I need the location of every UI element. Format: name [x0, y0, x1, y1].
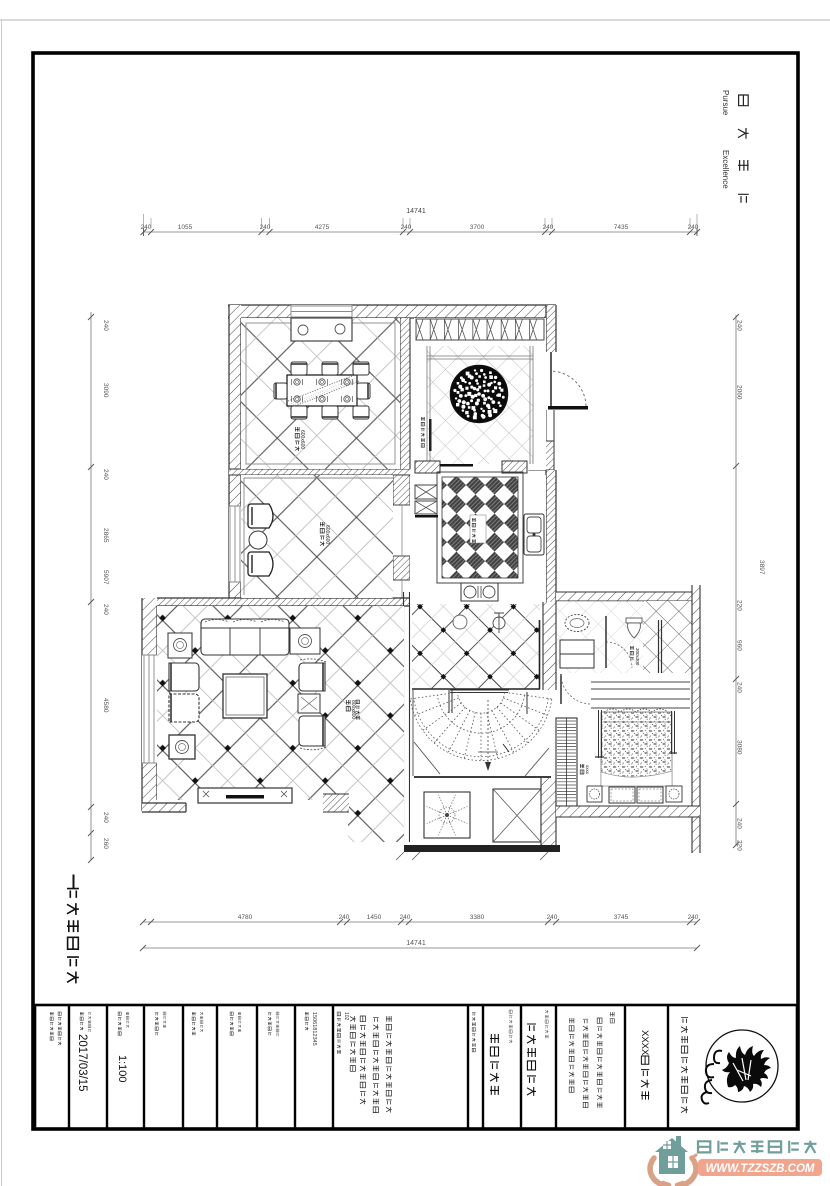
svg-text:1055: 1055	[178, 224, 193, 231]
svg-text:240: 240	[688, 914, 699, 921]
svg-text:3897: 3897	[758, 560, 765, 575]
svg-text:260: 260	[102, 838, 109, 849]
svg-text:240: 240	[543, 224, 554, 231]
svg-text:1:100: 1:100	[116, 1055, 128, 1083]
svg-text:xxxx: xxxx	[585, 765, 590, 775]
svg-text:960: 960	[736, 640, 743, 651]
svg-text:240: 240	[400, 914, 411, 921]
svg-text:240: 240	[401, 224, 412, 231]
svg-text:3745: 3745	[614, 914, 629, 921]
svg-text:15061812345: 15061812345	[311, 1012, 317, 1046]
svg-text:240: 240	[141, 224, 152, 231]
svg-text:3700: 3700	[470, 224, 485, 231]
svg-text:1450: 1450	[367, 914, 382, 921]
svg-text:5907: 5907	[102, 570, 109, 585]
svg-text:14741: 14741	[406, 208, 426, 215]
svg-text:4580: 4580	[102, 698, 109, 713]
svg-text:220: 220	[736, 600, 743, 611]
svg-text:240: 240	[260, 224, 271, 231]
svg-text:14741: 14741	[406, 940, 426, 947]
svg-text:102: 102	[343, 1012, 349, 1021]
svg-text:240: 240	[102, 604, 109, 615]
svg-text:240: 240	[736, 682, 743, 693]
svg-text:600x600: 600x600	[299, 430, 305, 449]
svg-text:240: 240	[102, 469, 109, 480]
svg-text:7435: 7435	[614, 224, 629, 231]
svg-text:Pursue: Pursue	[721, 90, 730, 116]
svg-text:3090: 3090	[102, 383, 109, 398]
svg-text:2060: 2060	[736, 385, 743, 400]
svg-text:300x300: 300x300	[635, 648, 640, 666]
svg-text:240: 240	[736, 818, 743, 829]
svg-text:240: 240	[339, 914, 350, 921]
svg-text:240: 240	[688, 224, 699, 231]
svg-text:240: 240	[736, 320, 743, 331]
svg-text:220: 220	[736, 840, 743, 851]
svg-text:4780: 4780	[238, 914, 253, 921]
svg-text:3080: 3080	[736, 740, 743, 755]
svg-text:800x800: 800x800	[350, 700, 356, 719]
svg-text:600x600: 600x600	[324, 525, 330, 544]
svg-text:240: 240	[547, 914, 558, 921]
svg-text:240: 240	[102, 320, 109, 331]
svg-text:Excellence: Excellence	[721, 150, 730, 189]
svg-text:2017/03/15: 2017/03/15	[76, 1034, 88, 1092]
svg-text:240: 240	[102, 812, 109, 823]
svg-text:4275: 4275	[315, 224, 330, 231]
svg-text:WWW.TZZSZB.COM: WWW.TZZSZB.COM	[705, 1163, 814, 1175]
svg-text:XXXX: XXXX	[639, 1030, 650, 1056]
svg-text:2865: 2865	[102, 528, 109, 543]
svg-text:3380: 3380	[470, 914, 485, 921]
